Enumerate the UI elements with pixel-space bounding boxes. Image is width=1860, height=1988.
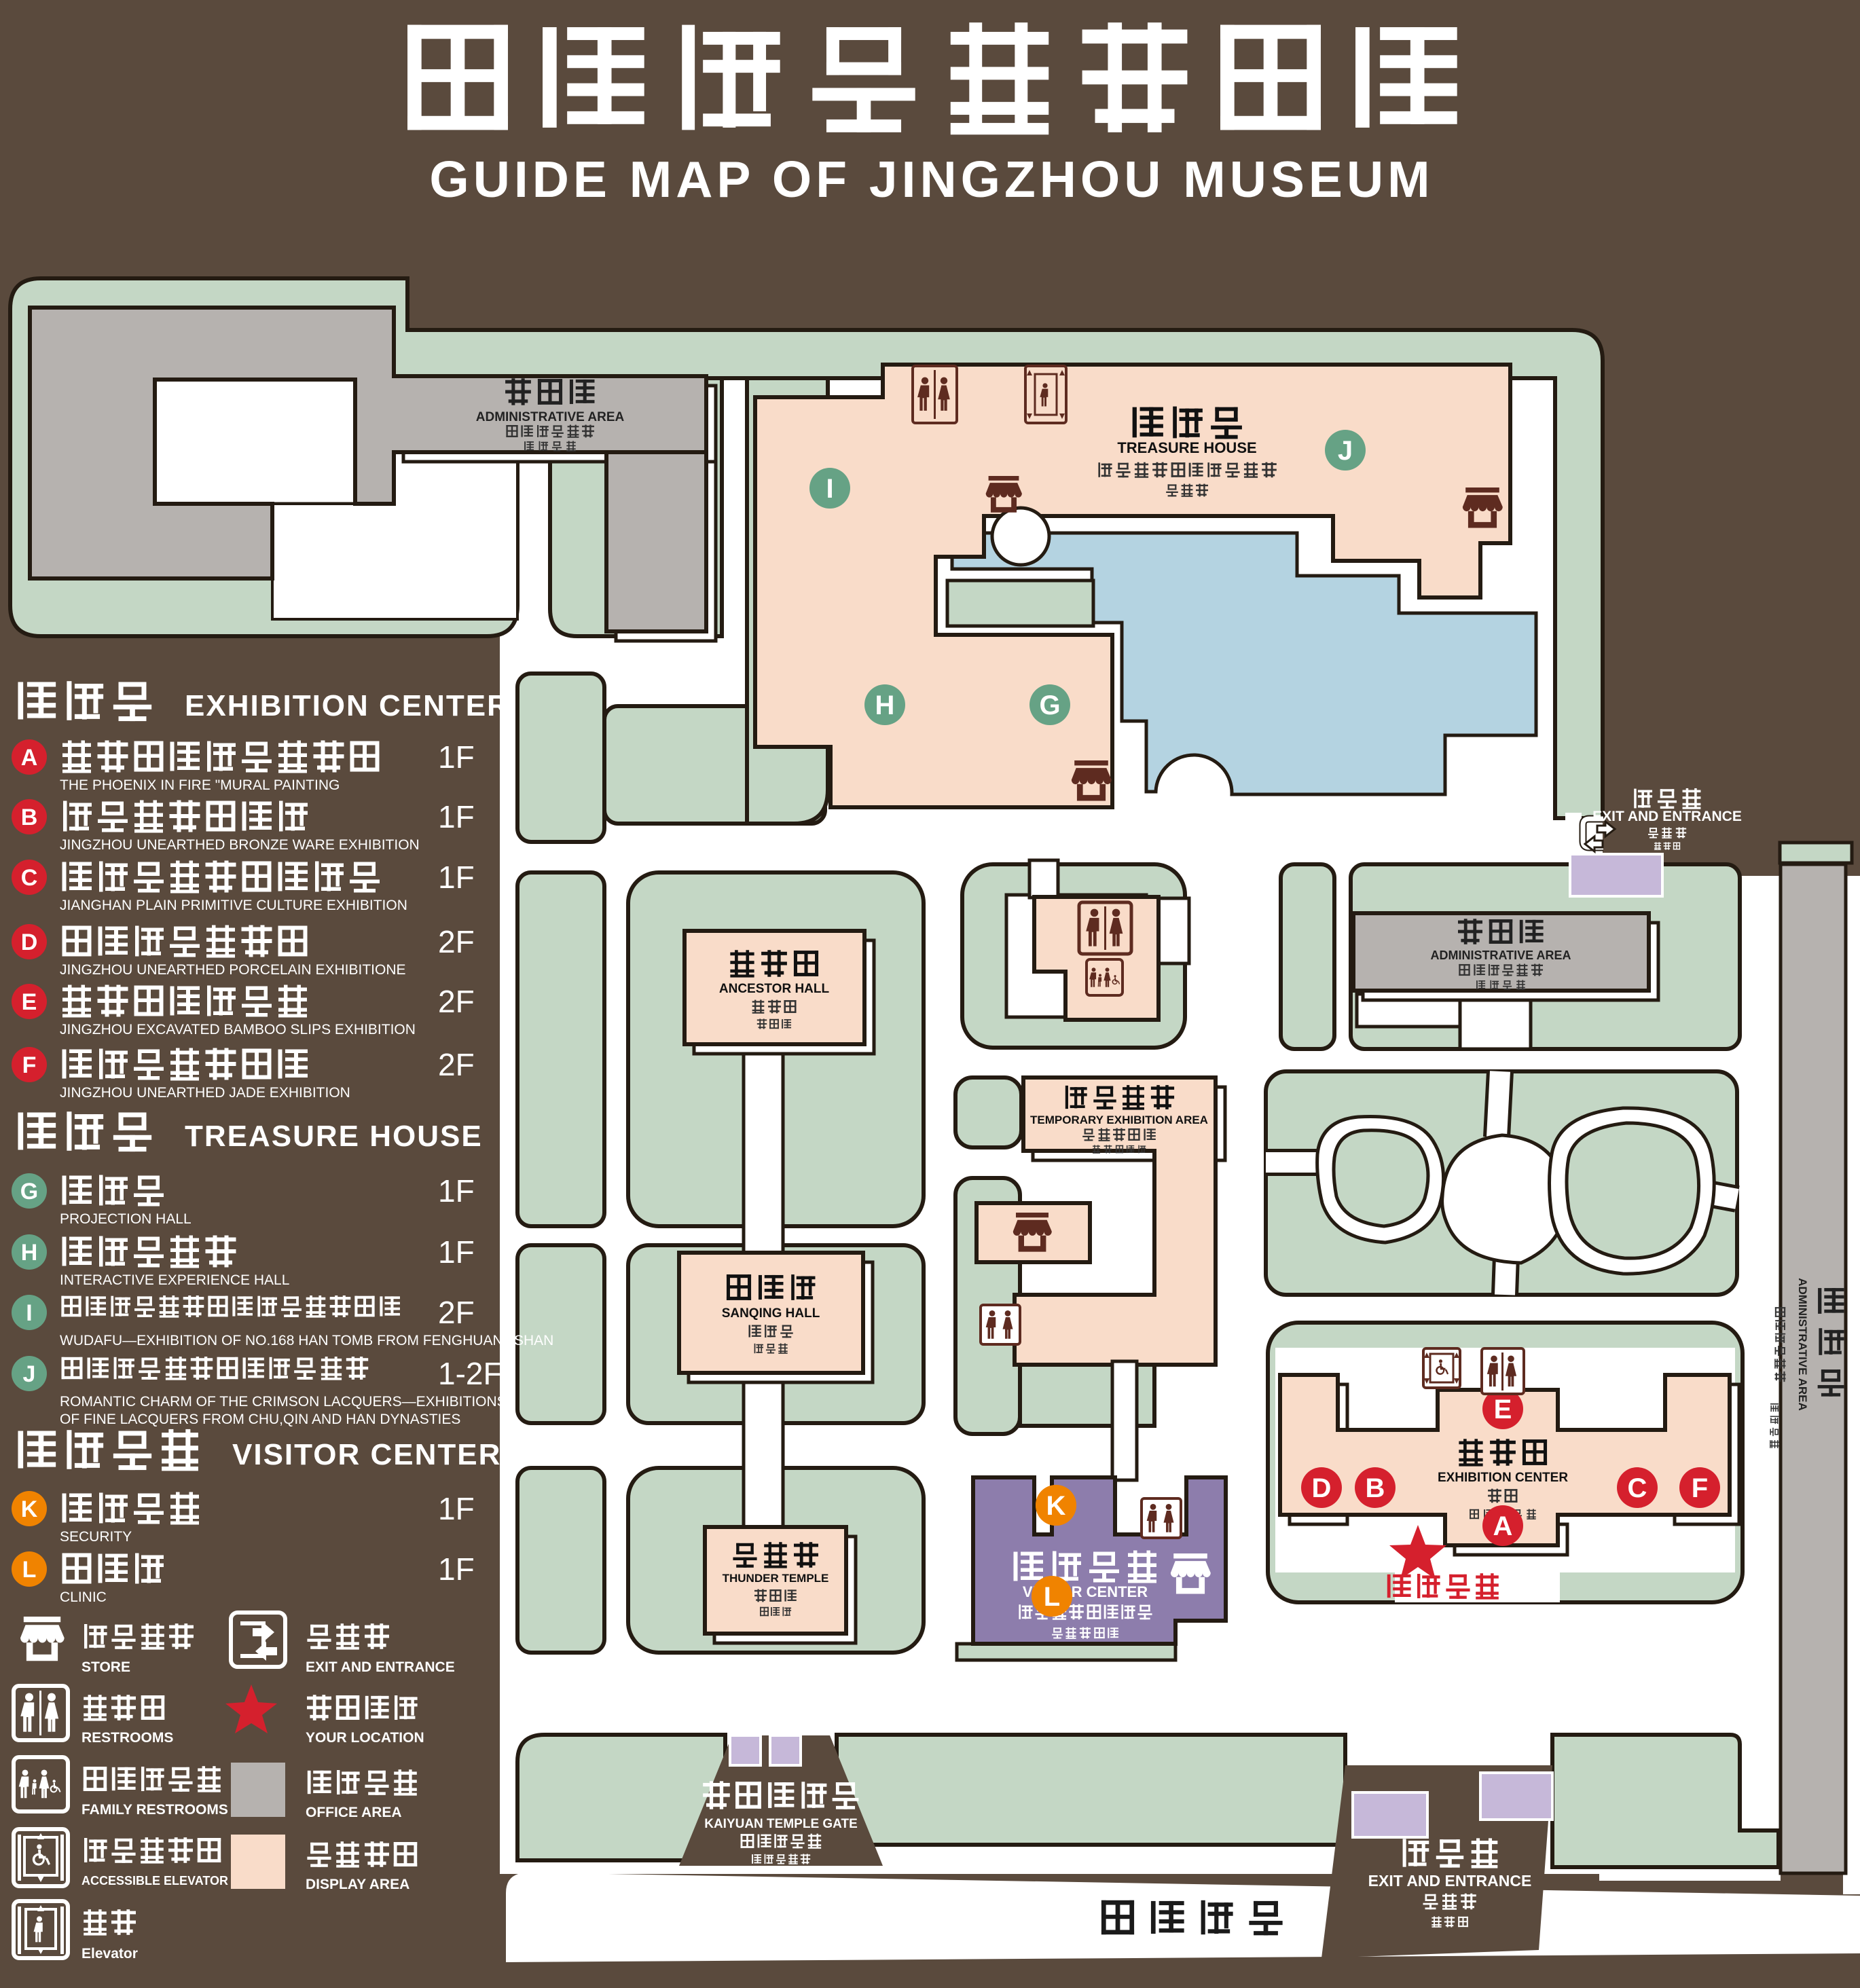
svg-text:EXIT AND ENTRANCE: EXIT AND ENTRANCE [1592,809,1742,824]
svg-text:ROMANTIC CHARM OF THE CRIMSON: ROMANTIC CHARM OF THE CRIMSON LACQUERS—E… [60,1394,507,1410]
svg-text:1F: 1F [438,860,475,895]
svg-text:K: K [1046,1491,1066,1521]
svg-text:YOUR LOCATION: YOUR LOCATION [306,1730,424,1746]
svg-text:F: F [22,1052,37,1078]
svg-text:1F: 1F [438,739,475,775]
svg-text:I: I [26,1300,32,1326]
svg-text:WUDAFU—EXHIBITION OF NO.168 HA: WUDAFU—EXHIBITION OF NO.168 HAN TOMB FRO… [60,1333,553,1348]
svg-text:2F: 2F [438,1295,475,1330]
svg-text:1F: 1F [438,1234,475,1270]
svg-text:THUNDER TEMPLE: THUNDER TEMPLE [723,1572,829,1585]
svg-text:EXHIBITION CENTER: EXHIBITION CENTER [1438,1471,1568,1485]
svg-text:2F: 2F [438,984,475,1019]
svg-text:D: D [21,929,38,955]
svg-text:ADMINISTRATIVE AREA: ADMINISTRATIVE AREA [1431,949,1571,962]
svg-text:JINGZHOU EXCAVATED BAMBOO SLIP: JINGZHOU EXCAVATED BAMBOO SLIPS EXHIBITI… [60,1022,416,1037]
svg-text:EXIT AND ENTRANCE: EXIT AND ENTRANCE [1368,1872,1532,1890]
svg-text:EXIT AND ENTRANCE: EXIT AND ENTRANCE [306,1659,455,1675]
svg-text:PROJECTION HALL: PROJECTION HALL [60,1211,192,1227]
svg-text:FAMILY RESTROOMS: FAMILY RESTROOMS [81,1802,228,1818]
svg-text:ADMINISTRATIVE AREA: ADMINISTRATIVE AREA [1796,1278,1809,1411]
svg-text:DISPLAY AREA: DISPLAY AREA [306,1877,409,1892]
svg-text:JINGZHOU UNEARTHED BRONZE WARE: JINGZHOU UNEARTHED BRONZE WARE EXHIBITIO… [60,837,420,853]
svg-text:J: J [23,1361,36,1387]
svg-text:2F: 2F [438,924,475,959]
svg-text:B: B [21,805,38,830]
svg-text:SANQING HALL: SANQING HALL [722,1306,820,1321]
svg-text:E: E [1494,1395,1512,1424]
svg-text:JINGZHOU UNEARTHED PORCELAIN E: JINGZHOU UNEARTHED PORCELAIN EXHIBITIONE [60,962,406,978]
svg-text:C: C [1628,1473,1647,1503]
svg-text:KAIYUAN TEMPLE GATE: KAIYUAN TEMPLE GATE [704,1817,858,1831]
svg-text:TREASURE HOUSE: TREASURE HOUSE [185,1120,483,1153]
svg-text:TREASURE HOUSE: TREASURE HOUSE [1117,439,1256,456]
svg-text:GUIDE MAP OF JINGZHOU MUSEUM: GUIDE MAP OF JINGZHOU MUSEUM [429,151,1434,208]
svg-text:1-2F: 1-2F [438,1356,503,1391]
svg-text:VISITOR CENTER: VISITOR CENTER [232,1438,501,1471]
svg-text:TEMPORARY EXHIBITION AREA: TEMPORARY EXHIBITION AREA [1030,1113,1208,1126]
svg-text:CLINIC: CLINIC [60,1589,107,1605]
svg-text:ADMINISTRATIVE AREA: ADMINISTRATIVE AREA [476,410,625,424]
svg-text:J: J [1338,436,1353,466]
svg-text:C: C [21,865,38,891]
svg-text:OFFICE AREA: OFFICE AREA [306,1805,402,1820]
svg-text:Elevator: Elevator [81,1946,138,1962]
svg-text:G: G [1039,691,1060,720]
svg-text:ACCESSIBLE ELEVATOR: ACCESSIBLE ELEVATOR [81,1874,228,1888]
svg-text:D: D [1312,1473,1332,1503]
svg-text:A: A [1493,1511,1513,1541]
svg-text:H: H [875,691,895,720]
svg-text:F: F [1692,1473,1708,1503]
svg-text:JIANGHAN PLAIN PRIMITIVE CULTU: JIANGHAN PLAIN PRIMITIVE CULTURE EXHIBIT… [60,898,407,913]
svg-text:ANCESTOR HALL: ANCESTOR HALL [719,982,830,996]
svg-text:L: L [22,1557,37,1583]
svg-text:A: A [21,745,38,771]
svg-text:1F: 1F [438,799,475,834]
svg-text:THE PHOENIX IN FIRE "MURAL PAI: THE PHOENIX IN FIRE "MURAL PAINTING [60,777,340,793]
svg-text:1F: 1F [438,1551,475,1587]
svg-text:SECURITY: SECURITY [60,1529,132,1545]
svg-text:1F: 1F [438,1491,475,1526]
svg-text:I: I [826,474,833,504]
svg-text:OF FINE LACQUERS FROM CHU,QIN: OF FINE LACQUERS FROM CHU,QIN AND HAN DY… [60,1412,460,1427]
svg-text:H: H [21,1240,38,1266]
svg-text:2F: 2F [438,1047,475,1082]
svg-text:G: G [20,1179,38,1204]
svg-text:B: B [1366,1473,1385,1503]
svg-text:K: K [21,1496,38,1522]
svg-text:INTERACTIVE EXPERIENCE HALL: INTERACTIVE EXPERIENCE HALL [60,1272,289,1288]
svg-text:STORE: STORE [81,1659,130,1675]
svg-text:EXHIBITION CENTER: EXHIBITION CENTER [185,689,510,722]
svg-text:L: L [1044,1582,1060,1612]
svg-text:RESTROOMS: RESTROOMS [81,1730,173,1746]
svg-text:E: E [22,989,37,1015]
svg-text:JINGZHOU UNEARTHED JADE EXHIBI: JINGZHOU UNEARTHED JADE EXHIBITION [60,1085,350,1101]
svg-text:1F: 1F [438,1173,475,1209]
